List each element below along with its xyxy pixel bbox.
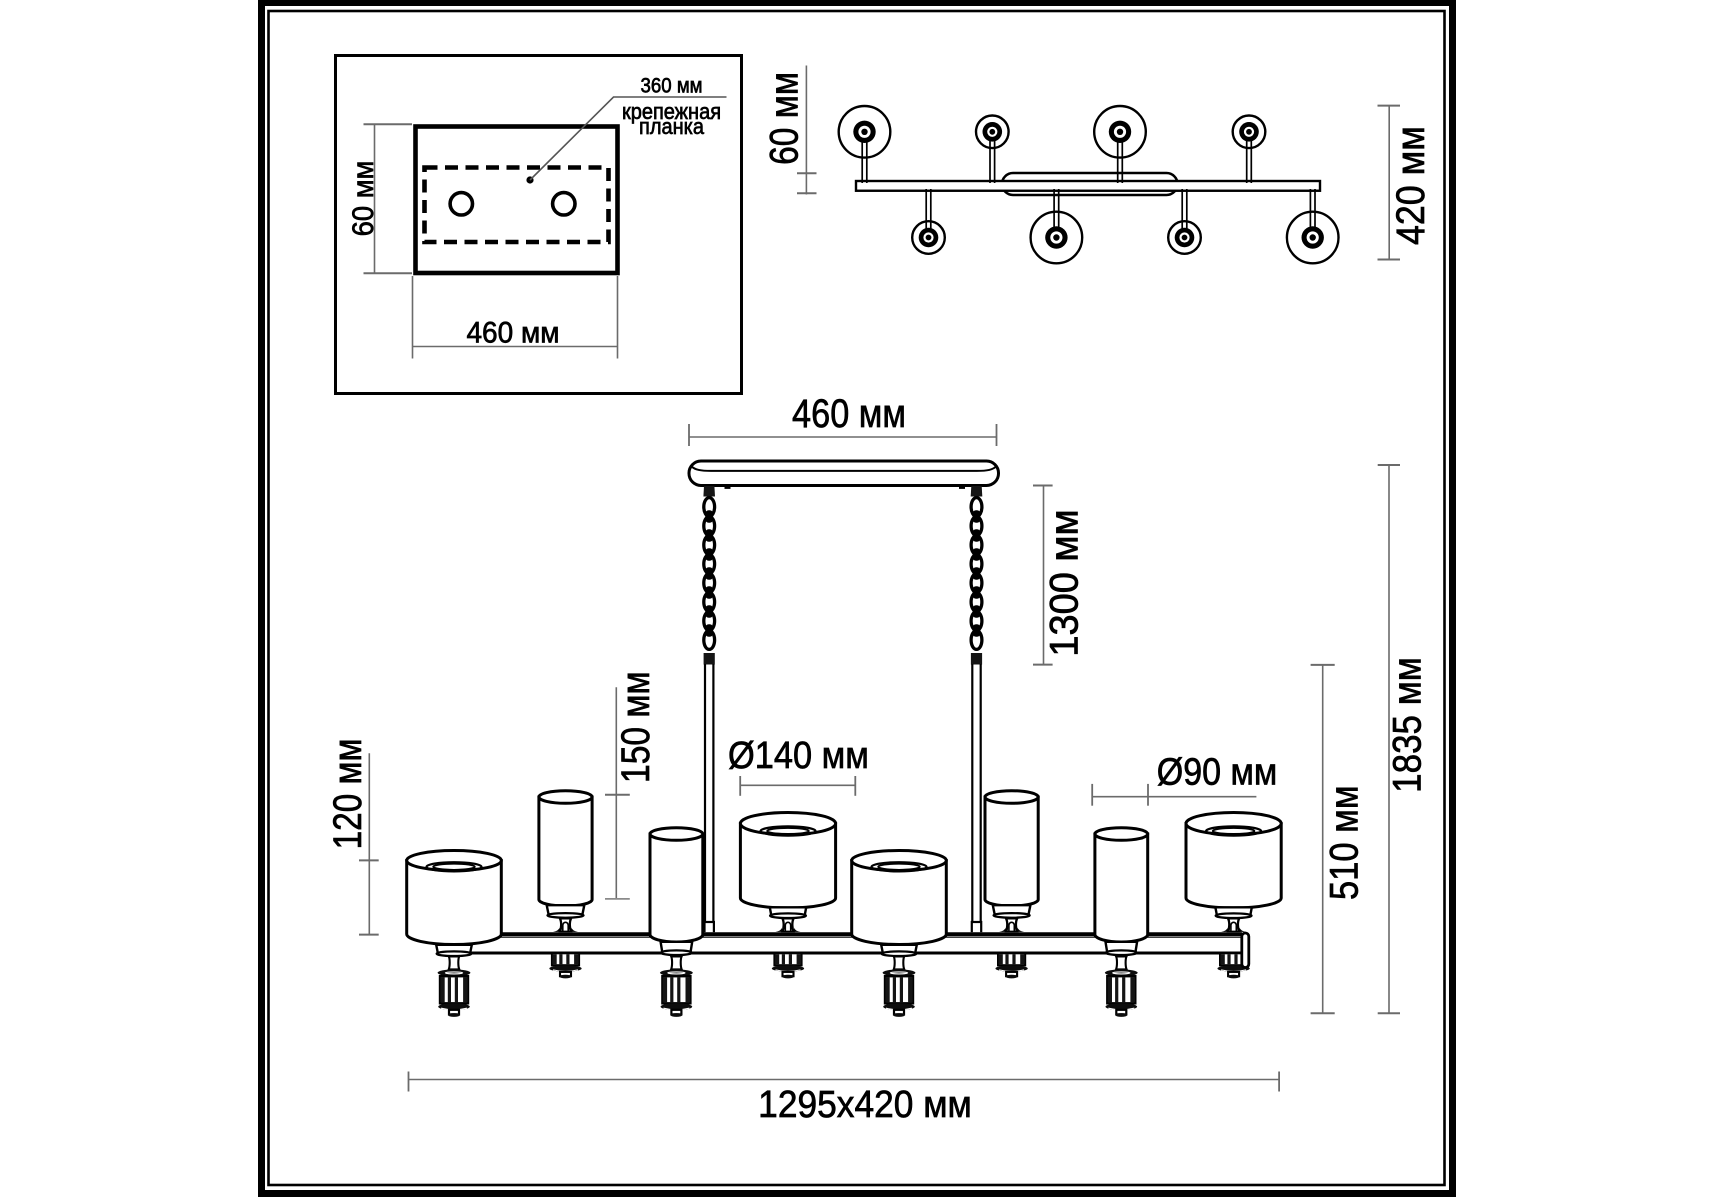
svg-text:1295x420 мм: 1295x420 мм — [758, 1083, 972, 1125]
svg-text:150 мм: 150 мм — [613, 671, 657, 783]
svg-text:460 мм: 460 мм — [792, 391, 906, 436]
svg-text:120 мм: 120 мм — [325, 739, 370, 850]
svg-text:1300 мм: 1300 мм — [1043, 509, 1087, 656]
svg-text:420 мм: 420 мм — [1389, 126, 1433, 245]
svg-text:510 мм: 510 мм — [1321, 785, 1366, 900]
svg-text:планка: планка — [639, 115, 704, 139]
svg-text:460 мм: 460 мм — [466, 317, 559, 350]
svg-text:Ø90 мм: Ø90 мм — [1157, 750, 1277, 793]
svg-text:60 мм: 60 мм — [347, 161, 380, 237]
svg-text:60 мм: 60 мм — [762, 72, 806, 165]
svg-text:1835 мм: 1835 мм — [1384, 657, 1429, 793]
svg-text:Ø140 мм: Ø140 мм — [728, 733, 869, 776]
svg-text:360 мм: 360 мм — [640, 75, 702, 98]
